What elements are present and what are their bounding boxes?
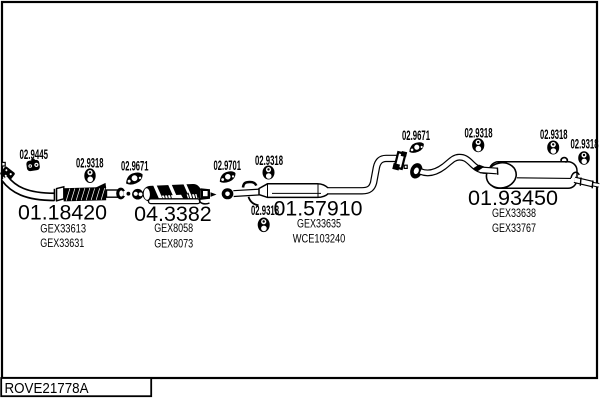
svg-text:01.57910: 01.57910	[274, 197, 363, 220]
svg-text:GEX33631: GEX33631	[40, 238, 84, 250]
svg-text:GEX33635: GEX33635	[297, 219, 341, 231]
svg-text:02.9318: 02.9318	[571, 137, 599, 152]
svg-text:GEX8073: GEX8073	[154, 239, 193, 251]
svg-text:02.9671: 02.9671	[121, 159, 149, 174]
svg-text:WCE103240: WCE103240	[293, 233, 346, 245]
svg-text:02.9671: 02.9671	[402, 128, 430, 143]
svg-text:GEX8058: GEX8058	[154, 223, 193, 235]
svg-text:01.18420: 01.18420	[18, 202, 107, 225]
svg-text:02.9318: 02.9318	[540, 127, 568, 142]
svg-text:GEX33767: GEX33767	[492, 223, 536, 235]
svg-text:ROVE21778A: ROVE21778A	[5, 380, 89, 397]
svg-text:GEX33638: GEX33638	[492, 208, 536, 220]
svg-text:02.9318: 02.9318	[76, 156, 104, 171]
svg-text:02.9701: 02.9701	[214, 158, 242, 173]
svg-text:GEX33613: GEX33613	[40, 223, 86, 235]
svg-text:01.93450: 01.93450	[468, 187, 558, 210]
